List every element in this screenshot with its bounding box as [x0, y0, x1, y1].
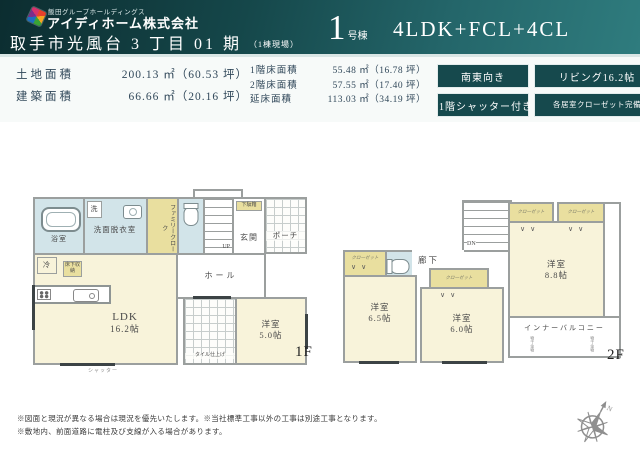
room-washroom: 洗 洗面脱衣室 — [83, 197, 148, 255]
floorplan-1f: 浴室 洗 洗面脱衣室 ファミリークローク UP 下駄箱 玄関 ポーチ — [33, 197, 307, 365]
western88-size: 8.8帖 — [510, 270, 603, 281]
company-logo-icon — [27, 7, 47, 27]
western65-name: 洋室 — [345, 302, 415, 313]
stairs-1f: UP — [203, 197, 234, 255]
unit-suffix: 号棟 — [348, 27, 368, 42]
closet-hall-hangers: ∨∨ — [351, 263, 371, 271]
floor1-area-row: 1階床面積 55.48 ㎡（16.78 坪） — [250, 64, 426, 79]
fridge-box: 冷 — [37, 257, 57, 274]
eaves-strip — [603, 202, 621, 318]
property-title: 取手市光風台 3 丁目 01 期 （1棟現場） — [10, 30, 299, 54]
washer-box: 洗 — [87, 201, 102, 218]
bathtub-icon — [41, 207, 81, 232]
header-band: 飯田グループホールディングス アイディホーム株式会社 取手市光風台 3 丁目 0… — [0, 0, 640, 57]
land-area-row: 土地面積 200.13 ㎡（60.53 坪） — [16, 65, 248, 87]
stove-icon — [37, 289, 51, 300]
building-area-label: 建築面積 — [16, 87, 78, 109]
western5-label: 洋室 5.0帖 — [237, 319, 305, 341]
room-toilet-1f — [177, 197, 205, 255]
western65-label: 洋室 6.5帖 — [345, 302, 415, 324]
floor-tag-2f: 2F — [607, 347, 625, 364]
property-note: （1棟現場） — [249, 40, 299, 49]
compass-north-label: N — [605, 404, 613, 413]
unit-number: 1 — [328, 10, 346, 45]
kitchen-counter — [33, 285, 111, 304]
ldk-name: LDK — [90, 310, 160, 324]
ldk-label: LDK 16.2帖 — [90, 310, 160, 336]
property-title-text: 取手市光風台 3 丁目 01 期 — [10, 36, 242, 53]
window-terrace-top — [193, 296, 231, 299]
western60-label: 洋室 6.0帖 — [422, 313, 502, 335]
stairs-dn-label: DN — [467, 241, 476, 249]
room-western-88: ∨∨ ∨∨ 洋室 8.8帖 — [508, 221, 605, 318]
total-area-label: 延床面積 — [250, 93, 308, 108]
hallway-label: 廊下 — [418, 255, 439, 266]
porch: ポーチ — [264, 197, 307, 254]
floorplan-2f: DN クローゼット ∨∨ 廊下 洋室 6.5帖 クローゼット ∨∨ 洋室 6.0… — [343, 200, 624, 366]
toilet-2f-icon — [390, 259, 409, 274]
window-western65-bottom — [359, 361, 399, 364]
floor1-area-value: 55.48 ㎡（16.78 坪） — [308, 64, 426, 79]
compass-icon: N — [567, 396, 619, 448]
layout-type: 4LDK+FCL+4CL — [393, 17, 570, 42]
room-family-cloak: ファミリークローク — [146, 197, 179, 255]
hanger-note-b: 物干金物 — [590, 336, 595, 352]
hall: ホール — [176, 253, 266, 299]
western60-name: 洋室 — [422, 313, 502, 324]
closet-western88-hangers-b: ∨∨ — [568, 225, 588, 233]
info-band: 土地面積 200.13 ㎡（60.53 坪） 建築面積 66.66 ㎡（20.1… — [0, 57, 640, 122]
building-area-row: 建築面積 66.66 ㎡（20.16 坪） — [16, 87, 248, 109]
closet-western88-b: クローゼット — [557, 202, 605, 223]
entrance-label: 玄関 — [234, 233, 264, 243]
ldk-size: 16.2帖 — [90, 324, 160, 336]
disclaimer-notes: ※図面と現況が異なる場合は現況を優先いたします。※当社標準工事以外の工事は別途工… — [17, 413, 382, 439]
closet-hall-label: クローゼット — [345, 255, 385, 261]
floor-tag-1f: 1F — [295, 344, 313, 361]
tile-label: タイル仕上げ — [185, 353, 235, 360]
porch-label: ポーチ — [266, 231, 305, 241]
washroom-label: 洗面脱衣室 — [89, 225, 141, 235]
sink-icon — [73, 289, 99, 302]
room-western-65: 洋室 6.5帖 — [343, 275, 417, 363]
window-western60-bottom — [442, 361, 487, 364]
closet-western88-hangers-a: ∨∨ — [520, 225, 540, 233]
floor2-area-label: 2階床面積 — [250, 79, 308, 94]
closet-western60-hangers: ∨∨ — [440, 291, 460, 299]
area-table-left: 土地面積 200.13 ㎡（60.53 坪） 建築面積 66.66 ㎡（20.1… — [16, 65, 248, 109]
western5-size: 5.0帖 — [237, 330, 305, 341]
washer-label: 洗 — [88, 205, 101, 214]
badge-closet: 各居室クローゼット完備 — [534, 93, 640, 117]
total-area-value: 113.03 ㎡（34.19 坪） — [308, 93, 426, 108]
disclaimer-line-2: ※敷地内、前面道路に電柱及び支線が入る場合があります。 — [17, 426, 382, 439]
family-cloak-label: ファミリークローク — [159, 202, 175, 253]
shutter-note: シャッター — [88, 369, 118, 376]
shoe-box: 下駄箱 — [236, 201, 262, 211]
floor2-area-row: 2階床面積 57.55 ㎡（17.40 坪） — [250, 79, 426, 94]
land-area-label: 土地面積 — [16, 65, 78, 87]
western65-size: 6.5帖 — [345, 313, 415, 324]
bath-label: 浴室 — [35, 235, 83, 244]
tiled-terrace: タイル仕上げ — [183, 297, 237, 365]
balcony-label: インナーバルコニー — [510, 324, 619, 333]
building-area-value: 66.66 ㎡（20.16 坪） — [78, 87, 248, 109]
room-bath: 浴室 — [33, 197, 85, 255]
inner-balcony: インナーバルコニー 物干金物 物干金物 — [508, 316, 621, 358]
floor2-area-value: 57.55 ㎡（17.40 坪） — [308, 79, 426, 94]
closet-western60-label: クローゼット — [431, 275, 487, 281]
badge-facing: 南東向き — [437, 64, 529, 88]
underfloor-label: 床下収納 — [65, 263, 80, 275]
room-toilet-2f — [385, 250, 414, 277]
western88-label: 洋室 8.8帖 — [510, 259, 603, 281]
closet-western60: クローゼット — [429, 268, 489, 289]
shoe-box-label: 下駄箱 — [237, 203, 261, 210]
floor1-area-label: 1階床面積 — [250, 64, 308, 79]
disclaimer-line-1: ※図面と現況が異なる場合は現況を優先いたします。※当社標準工事以外の工事は別途工… — [17, 413, 382, 426]
feature-badges: 南東向き リビング16.2帖 1階シャッター付き 各居室クローゼット完備 — [437, 64, 640, 117]
western88-name: 洋室 — [510, 259, 603, 270]
badge-shutter: 1階シャッター付き — [437, 93, 529, 117]
hall-label: ホール — [178, 271, 264, 281]
room-western-60: ∨∨ 洋室 6.0帖 — [420, 287, 504, 363]
total-area-row: 延床面積 113.03 ㎡（34.19 坪） — [250, 93, 426, 108]
window-ldk-bottom — [60, 363, 115, 366]
washbasin-icon — [123, 205, 142, 219]
toilet-icon — [184, 207, 199, 226]
area-table-right: 1階床面積 55.48 ㎡（16.78 坪） 2階床面積 57.55 ㎡（17.… — [250, 64, 426, 108]
closet-western88-b-label: クローゼット — [559, 209, 603, 215]
western60-size: 6.0帖 — [422, 324, 502, 335]
flyer-page: 飯田グループホールディングス アイディホーム株式会社 取手市光風台 3 丁目 0… — [0, 0, 640, 452]
closet-western88-a-label: クローゼット — [510, 209, 552, 215]
western5-name: 洋室 — [237, 319, 305, 330]
room-ldk: 冷 床下収納 LDK 16.2帖 — [33, 253, 178, 365]
land-area-value: 200.13 ㎡（60.53 坪） — [78, 65, 248, 87]
closet-western88-a: クローゼット — [508, 202, 554, 223]
hanger-note-a: 物干金物 — [530, 336, 535, 352]
unit-number-block: 1 号棟 — [328, 10, 368, 45]
window-ldk-left — [32, 285, 35, 330]
stairs-2f: DN — [462, 200, 512, 252]
badge-living-size: リビング16.2帖 — [534, 64, 640, 88]
underfloor-storage: 床下収納 — [63, 261, 82, 277]
stairs-up-label: UP — [222, 244, 230, 252]
fridge-label: 冷 — [38, 261, 56, 270]
closet-hall-2f: クローゼット ∨∨ — [343, 250, 387, 277]
